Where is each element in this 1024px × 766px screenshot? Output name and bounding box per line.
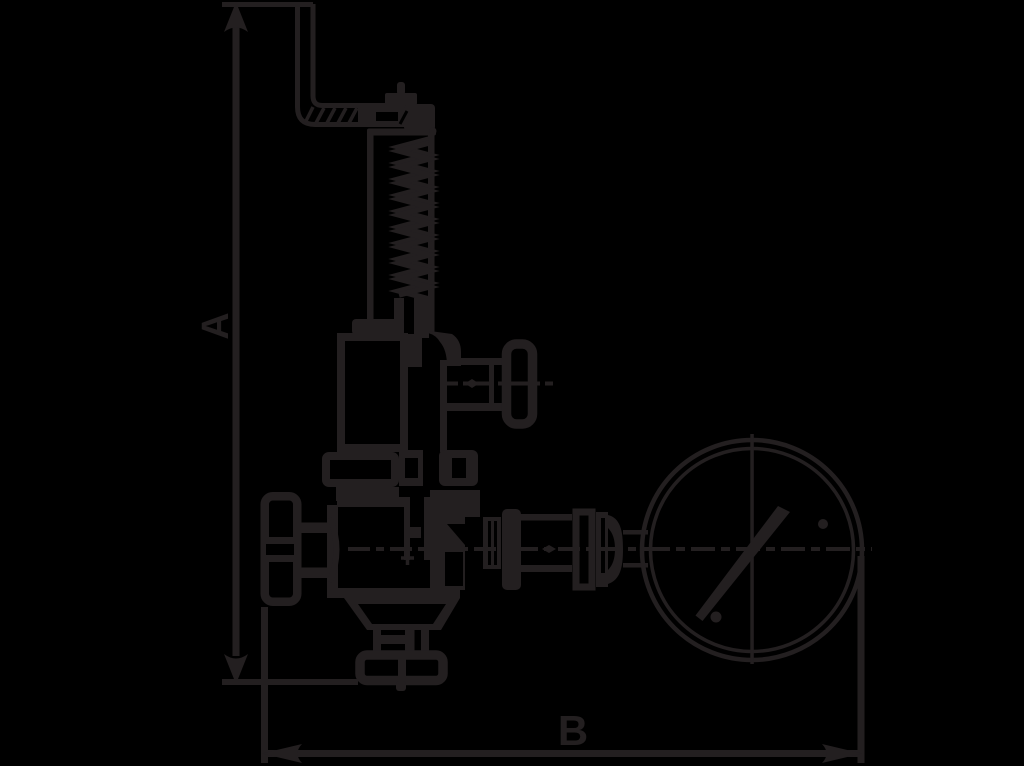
- svg-text:A: A: [195, 312, 237, 339]
- svg-text:B: B: [558, 707, 588, 754]
